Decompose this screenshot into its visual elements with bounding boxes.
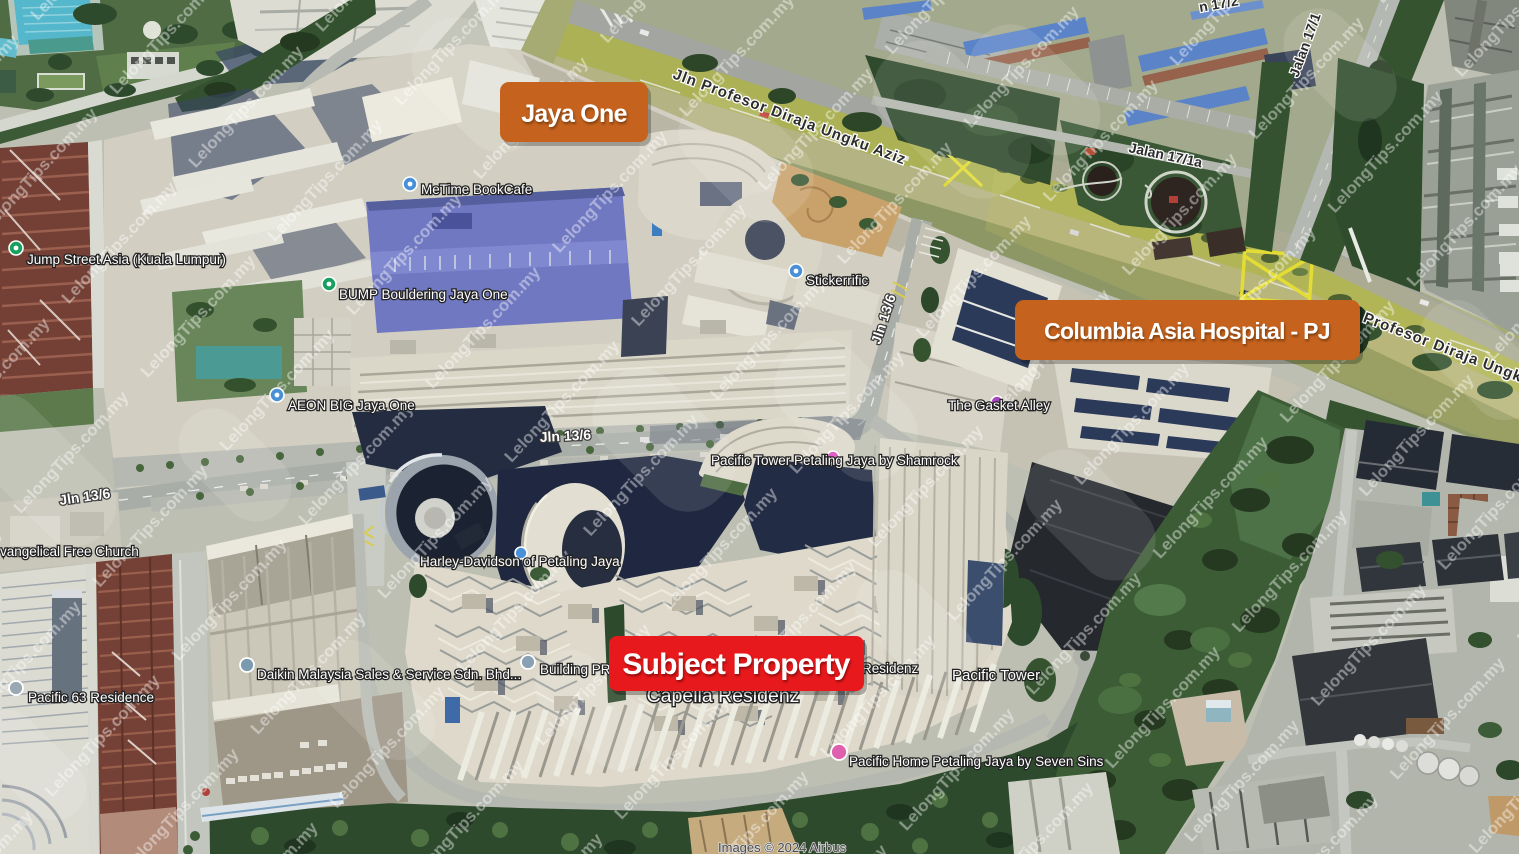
svg-text:vangelical Free Church: vangelical Free Church	[0, 544, 139, 559]
svg-text:The Gasket Alley: The Gasket Alley	[948, 398, 1050, 413]
svg-text:Subject Property: Subject Property	[622, 648, 850, 681]
svg-text:Jump Street Asia (Kuala Lumpur: Jump Street Asia (Kuala Lumpur)	[27, 252, 226, 267]
svg-text:AEON BIG Jaya One: AEON BIG Jaya One	[288, 398, 415, 413]
svg-text:Pacific Tower Petaling Jaya by: Pacific Tower Petaling Jaya by Shamrock	[711, 453, 958, 468]
svg-text:Residenz: Residenz	[862, 661, 919, 676]
svg-text:Images © 2024 Airbus: Images © 2024 Airbus	[718, 840, 847, 854]
svg-text:MeTime BookCafe: MeTime BookCafe	[421, 182, 532, 197]
svg-text:Columbia Asia Hospital - PJ: Columbia Asia Hospital - PJ	[1044, 318, 1330, 344]
svg-text:Stickerrific: Stickerrific	[806, 273, 869, 288]
svg-text:BUMP Bouldering Jaya One: BUMP Bouldering Jaya One	[339, 287, 508, 302]
svg-text:Pacific Tower: Pacific Tower	[952, 667, 1040, 684]
svg-text:Jln 13/6: Jln 13/6	[539, 426, 591, 445]
svg-text:Harley-Davidson of Petaling Ja: Harley-Davidson of Petaling Jaya	[420, 554, 620, 569]
svg-text:Daikin Malaysia Sales & Servic: Daikin Malaysia Sales & Service Sdn. Bhd…	[257, 667, 521, 682]
svg-text:Pacific Home Petaling Jaya by: Pacific Home Petaling Jaya by Seven Sins	[849, 754, 1104, 769]
svg-text:Pacific 63 Residence: Pacific 63 Residence	[28, 690, 154, 705]
svg-text:Building PR: Building PR	[540, 662, 611, 677]
svg-text:Jaya One: Jaya One	[521, 100, 627, 128]
